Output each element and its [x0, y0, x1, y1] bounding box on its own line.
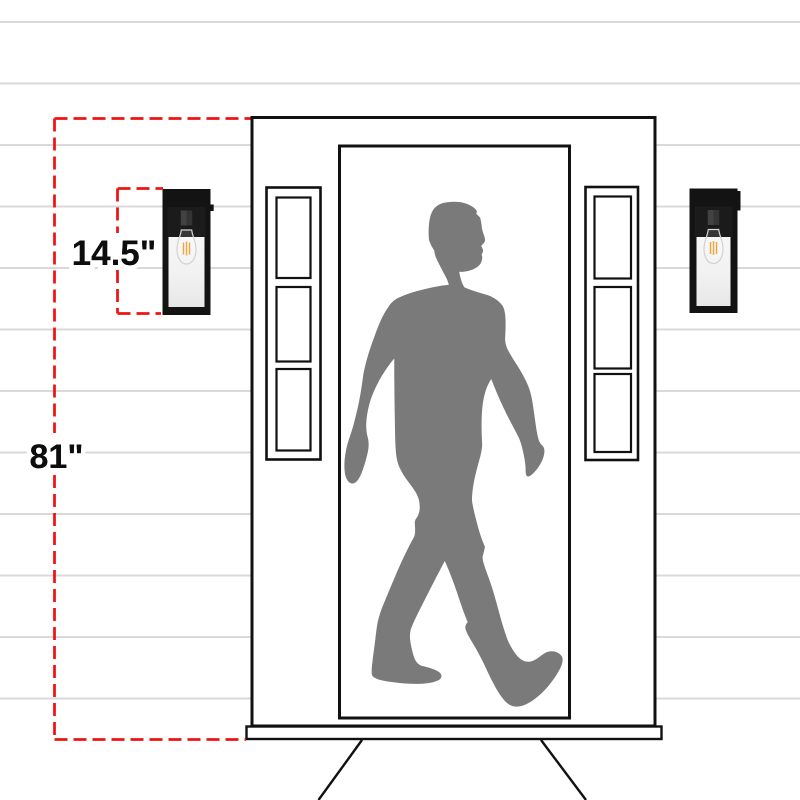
svg-text:81": 81"	[30, 438, 84, 476]
svg-text:14.5": 14.5"	[72, 234, 157, 273]
